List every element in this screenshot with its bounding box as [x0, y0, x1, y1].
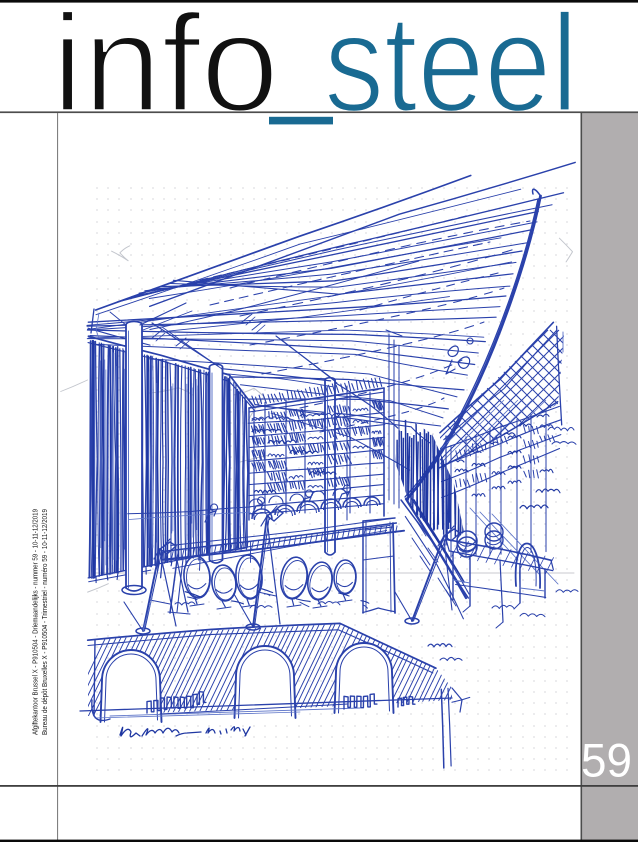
svg-text:info: info: [52, 0, 279, 141]
svg-text:Afgiftekantoor Brussel X - P91: Afgiftekantoor Brussel X - P910504 - Dri…: [33, 509, 40, 735]
svg-text:Bureau de dépôt Bruxelles X -: Bureau de dépôt Bruxelles X - P910504 - …: [42, 509, 49, 735]
svg-text:59: 59: [581, 734, 632, 787]
svg-text:steel: steel: [324, 0, 578, 141]
